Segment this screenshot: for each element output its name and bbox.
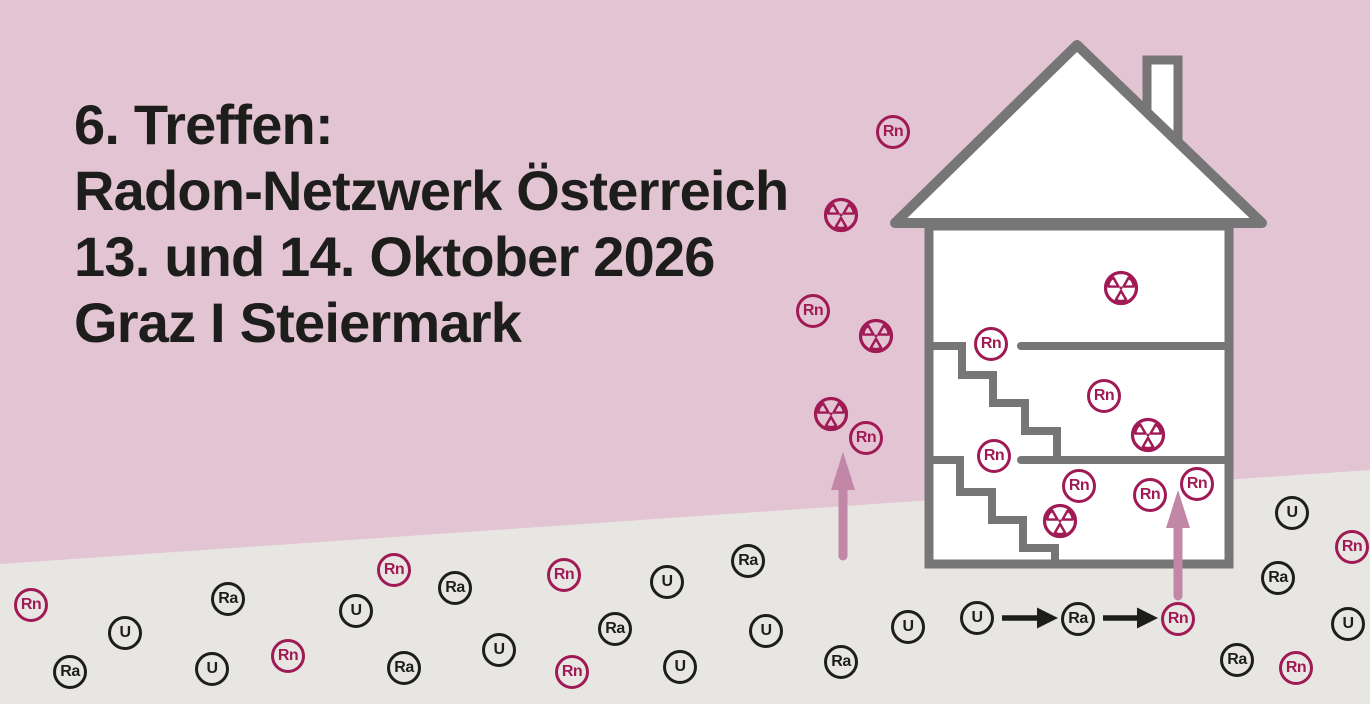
rn-symbol: Rn	[1133, 478, 1167, 512]
u-symbol: U	[482, 633, 516, 667]
title-line-3: 13. und 14. Oktober 2026	[74, 224, 788, 290]
rn-symbol: Rn	[1062, 469, 1096, 503]
ra-symbol: Ra	[1220, 643, 1254, 677]
u-symbol: U	[749, 614, 783, 648]
ra-symbol: Ra	[1061, 602, 1095, 636]
rn-symbol: Rn	[876, 115, 910, 149]
u-symbol: U	[195, 652, 229, 686]
event-title: 6. Treffen: Radon-Netzwerk Österreich 13…	[74, 92, 788, 356]
ra-symbol: Ra	[598, 612, 632, 646]
rn-symbol: Rn	[377, 553, 411, 587]
ra-symbol: Ra	[211, 582, 245, 616]
rn-symbol: Rn	[796, 294, 830, 328]
rn-symbol: Rn	[1279, 651, 1313, 685]
trefoil-glyph	[857, 317, 895, 355]
rn-symbol: Rn	[555, 655, 589, 689]
trefoil-glyph	[1129, 416, 1167, 454]
radon-event-banner: RnRnRnRnRnRnRnRnRnURnRaURaRnRnURaRaURnUR…	[0, 0, 1370, 704]
u-symbol: U	[1331, 607, 1365, 641]
u-symbol: U	[663, 650, 697, 684]
u-symbol: U	[1275, 496, 1309, 530]
ra-symbol: Ra	[53, 655, 87, 689]
u-symbol: U	[339, 594, 373, 628]
rn-symbol: Rn	[547, 558, 581, 592]
trefoil-glyph	[1102, 269, 1140, 307]
u-symbol: U	[891, 610, 925, 644]
ra-symbol: Ra	[438, 571, 472, 605]
ra-symbol: Ra	[1261, 561, 1295, 595]
title-line-4: Graz I Steiermark	[74, 290, 788, 356]
rn-symbol: Rn	[1335, 530, 1369, 564]
rn-symbol: Rn	[849, 421, 883, 455]
title-line-1: 6. Treffen:	[74, 92, 788, 158]
radiation-trefoil-icon	[1102, 269, 1140, 307]
radiation-trefoil-icon	[822, 196, 860, 234]
ra-symbol: Ra	[731, 544, 765, 578]
u-symbol: U	[960, 601, 994, 635]
rn-symbol: Rn	[14, 588, 48, 622]
radiation-trefoil-icon	[1041, 502, 1079, 540]
ra-symbol: Ra	[387, 651, 421, 685]
rn-symbol: Rn	[1087, 379, 1121, 413]
rn-symbol: Rn	[1180, 467, 1214, 501]
trefoil-glyph	[1041, 502, 1079, 540]
trefoil-glyph	[822, 196, 860, 234]
radiation-trefoil-icon	[857, 317, 895, 355]
radiation-trefoil-icon	[812, 395, 850, 433]
radiation-trefoil-icon	[1129, 416, 1167, 454]
u-symbol: U	[108, 616, 142, 650]
trefoil-glyph	[812, 395, 850, 433]
rn-symbol: Rn	[974, 327, 1008, 361]
rn-symbol: Rn	[977, 439, 1011, 473]
u-symbol: U	[650, 565, 684, 599]
title-line-2: Radon-Netzwerk Österreich	[74, 158, 788, 224]
rn-symbol: Rn	[1161, 602, 1195, 636]
ra-symbol: Ra	[824, 645, 858, 679]
rn-symbol: Rn	[271, 639, 305, 673]
